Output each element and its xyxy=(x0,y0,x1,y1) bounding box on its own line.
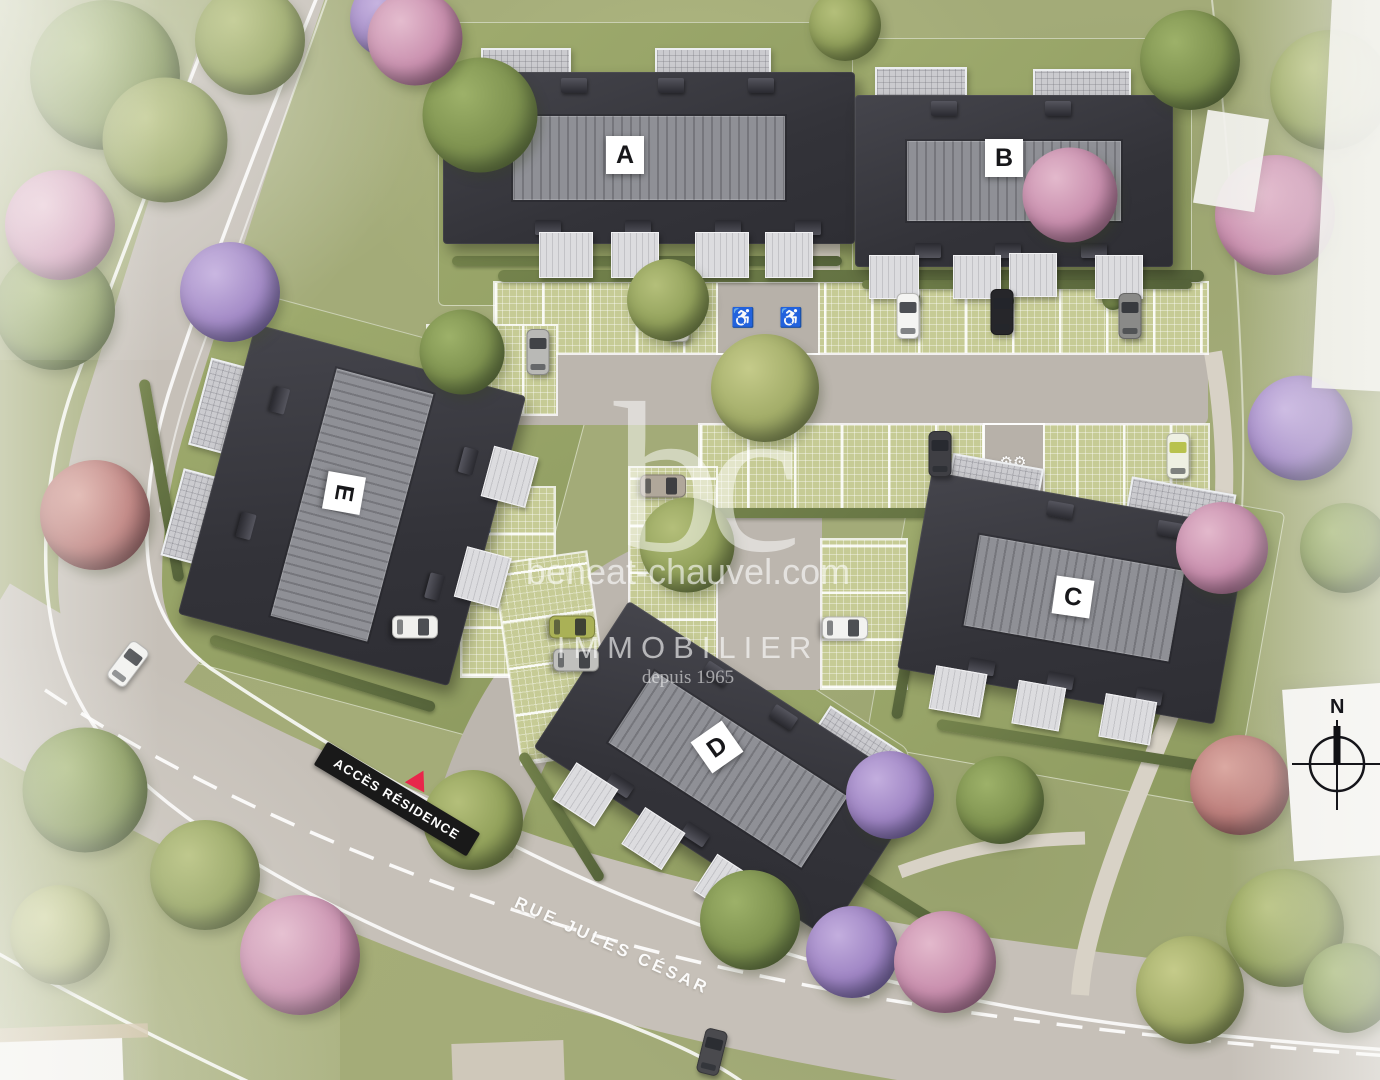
watermark-website: beneat-chauvel.com xyxy=(526,551,850,593)
balcony xyxy=(1009,253,1057,297)
building-label-a: A xyxy=(606,136,644,174)
building-label-b: B xyxy=(985,139,1023,177)
tree xyxy=(23,728,148,853)
car xyxy=(1119,293,1142,339)
car xyxy=(1167,433,1190,479)
car xyxy=(822,617,868,640)
roof-ridge xyxy=(513,116,785,200)
building-letter: C xyxy=(1062,581,1084,612)
balcony xyxy=(765,232,813,278)
gravel-patch xyxy=(451,1040,564,1080)
tree-flowering-purple xyxy=(846,751,934,839)
tree xyxy=(1136,936,1244,1044)
handicap-icon: ♿ xyxy=(731,306,755,330)
building-label-e: E xyxy=(322,471,366,515)
compass-north-icon: N xyxy=(1292,698,1380,823)
balcony xyxy=(1098,693,1157,745)
tree-flowering-pink xyxy=(894,911,996,1013)
balcony xyxy=(539,232,593,278)
building-letter: D xyxy=(701,730,732,764)
tree-flowering-red xyxy=(40,460,150,570)
handicap-icon: ♿ xyxy=(779,306,803,330)
balcony xyxy=(695,232,749,278)
balcony xyxy=(929,665,988,717)
tree xyxy=(103,78,228,203)
building-b xyxy=(855,95,1173,267)
tree xyxy=(700,870,800,970)
tree xyxy=(627,259,709,341)
tree-flowering-purple xyxy=(1248,376,1353,481)
tree xyxy=(10,885,110,985)
tree xyxy=(1300,503,1380,593)
building-letter: A xyxy=(616,141,634,170)
tree-flowering-pink xyxy=(1176,502,1268,594)
balcony xyxy=(1011,680,1066,732)
tree-flowering-pink xyxy=(1023,148,1118,243)
tree-flowering-pink xyxy=(240,895,360,1015)
building-letter: E xyxy=(328,482,359,503)
compass-north-label: N xyxy=(1330,696,1344,719)
tree-flowering-red xyxy=(1190,735,1290,835)
car xyxy=(929,431,952,477)
site-plan: ♿ ♿ ♿ ⚙︎⚙︎ xyxy=(0,0,1380,1080)
tree xyxy=(420,310,505,395)
neighbor-building xyxy=(0,1038,124,1080)
tree xyxy=(150,820,260,930)
tree xyxy=(1140,10,1240,110)
watermark-brand: IMMOBILIER xyxy=(557,630,820,666)
building-letter: B xyxy=(995,144,1013,173)
building-label-c: C xyxy=(1052,576,1095,619)
tree-flowering-purple xyxy=(180,242,280,342)
tree-flowering-pink xyxy=(5,170,115,280)
watermark-tagline: depuis 1965 xyxy=(642,667,734,689)
car xyxy=(392,616,438,639)
tree xyxy=(956,756,1044,844)
car xyxy=(897,293,920,339)
car xyxy=(991,289,1014,335)
tree-flowering-purple xyxy=(806,906,898,998)
car xyxy=(527,329,550,375)
